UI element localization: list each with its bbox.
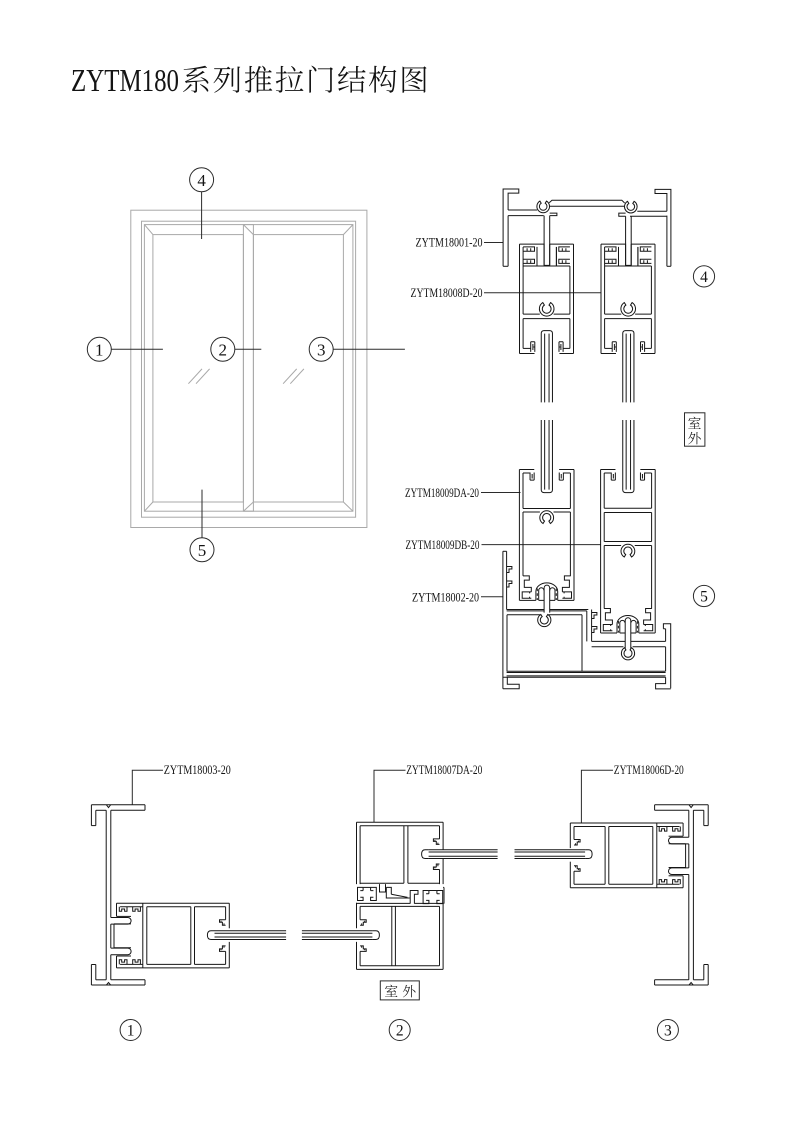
svg-text:ZYTM18003-20: ZYTM18003-20 [164,763,231,777]
svg-text:5: 5 [198,541,207,560]
svg-text:ZYTM18006D-20: ZYTM18006D-20 [614,763,684,777]
svg-text:ZYTM18007DA-20: ZYTM18007DA-20 [406,763,482,777]
svg-text:ZYTM18009DA-20: ZYTM18009DA-20 [405,486,479,500]
svg-text:5: 5 [700,589,708,606]
svg-text:1: 1 [127,1023,135,1040]
svg-text:ZYTM18001-20: ZYTM18001-20 [416,236,483,250]
svg-text:ZYTM18009DB-20: ZYTM18009DB-20 [406,538,480,552]
svg-text:4: 4 [197,171,206,190]
svg-text:ZYTM180: ZYTM180 [71,62,179,98]
svg-text:ZYTM18008D-20: ZYTM18008D-20 [411,286,483,300]
svg-text:2: 2 [396,1023,404,1040]
svg-text:3: 3 [317,340,326,359]
svg-text:3: 3 [664,1023,672,1040]
svg-text:2: 2 [219,340,228,359]
svg-text:4: 4 [700,269,708,286]
svg-text:ZYTM18002-20: ZYTM18002-20 [412,590,479,604]
svg-text:1: 1 [95,340,104,359]
